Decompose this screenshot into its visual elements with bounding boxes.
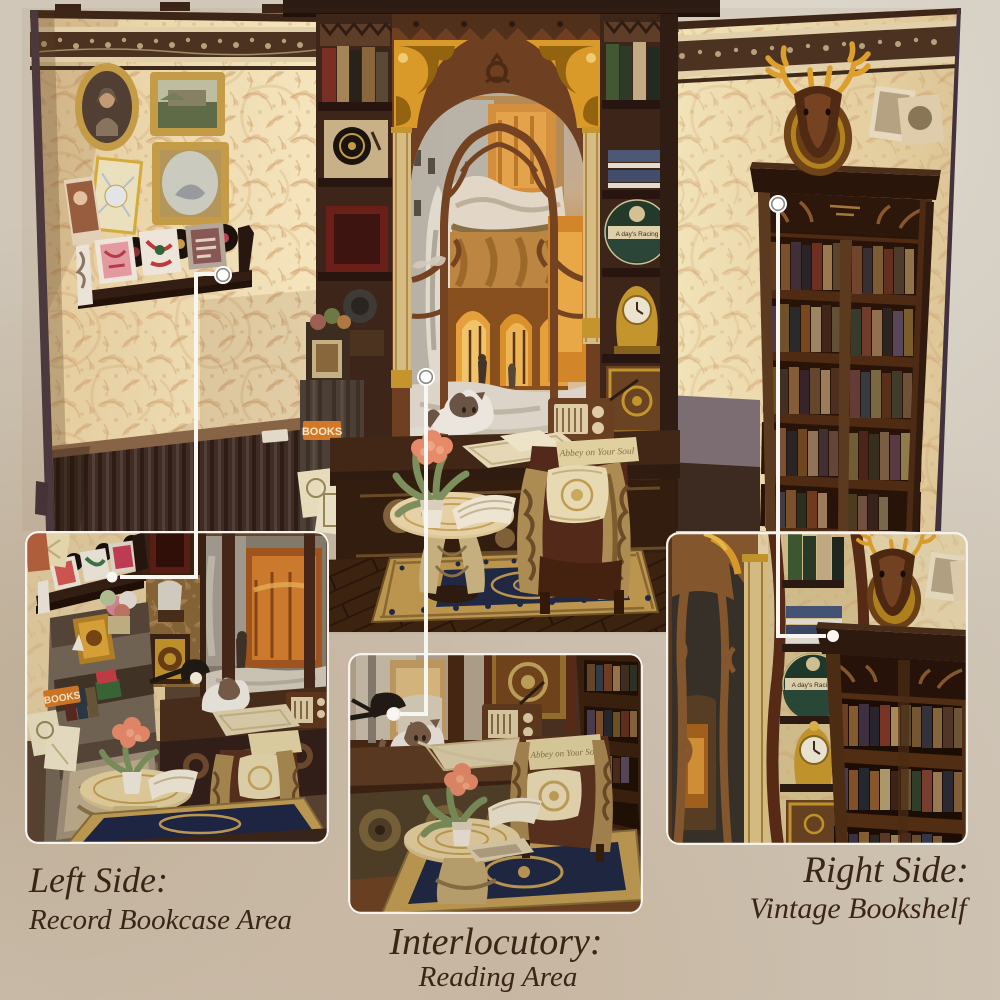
svg-text:Left Side:: Left Side:: [28, 860, 168, 900]
svg-text:Interlocutory:: Interlocutory:: [388, 921, 602, 963]
svg-text:Vintage Bookshelf: Vintage Bookshelf: [750, 892, 971, 925]
svg-text:Record Bookcase Area: Record Bookcase Area: [28, 904, 292, 936]
svg-text:Right Side:: Right Side:: [802, 850, 968, 891]
svg-text:Reading Area: Reading Area: [418, 961, 578, 993]
